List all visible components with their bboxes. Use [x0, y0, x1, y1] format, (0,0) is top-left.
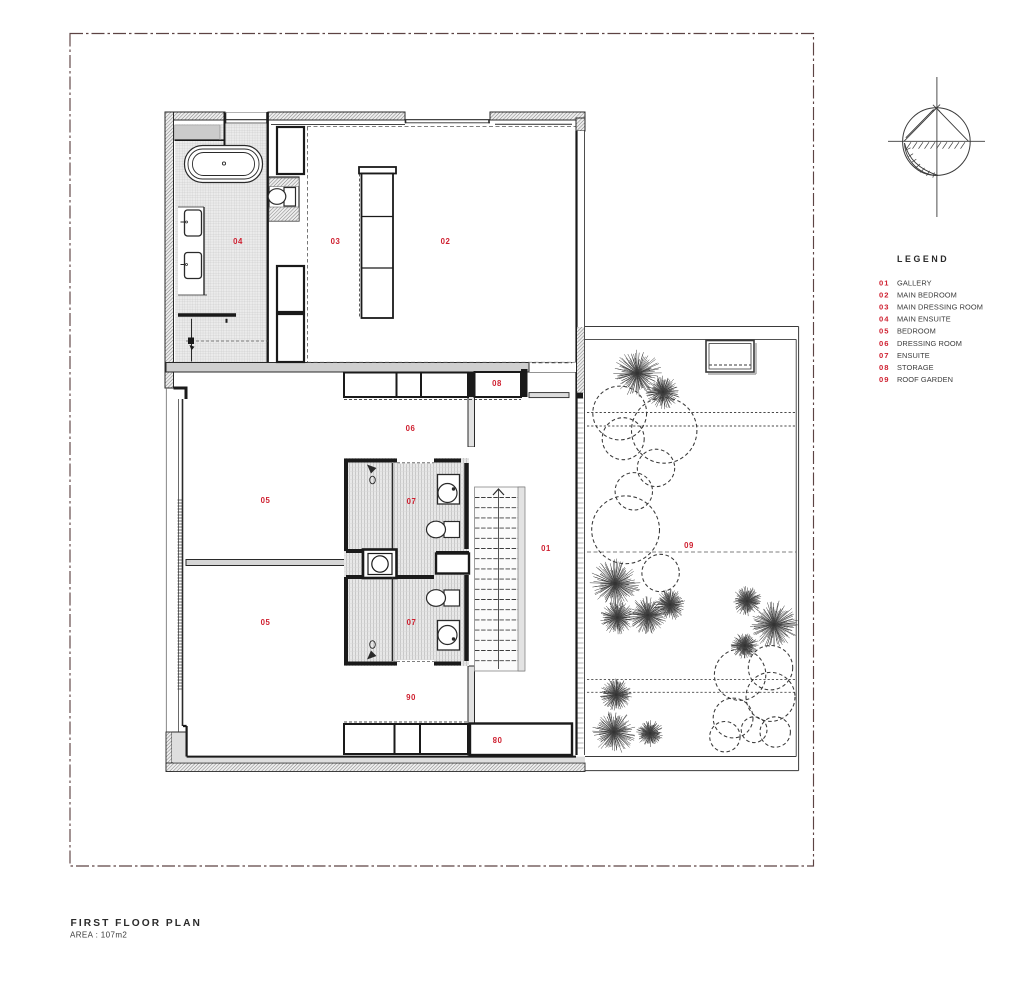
- svg-text:06: 06: [879, 339, 889, 348]
- svg-text:02: 02: [441, 237, 451, 246]
- svg-text:ENSUITE: ENSUITE: [897, 351, 930, 360]
- svg-text:06: 06: [406, 692, 416, 701]
- svg-text:08: 08: [492, 379, 502, 388]
- svg-text:LEGEND: LEGEND: [897, 254, 949, 264]
- svg-text:MAIN BEDROOM: MAIN BEDROOM: [897, 290, 957, 299]
- svg-text:05: 05: [261, 618, 271, 627]
- svg-text:04: 04: [879, 315, 889, 324]
- svg-text:STORAGE: STORAGE: [897, 363, 934, 372]
- svg-text:05: 05: [879, 327, 889, 336]
- svg-text:AREA : 107m2: AREA : 107m2: [70, 931, 127, 940]
- svg-text:04: 04: [233, 237, 243, 246]
- svg-text:FIRST FLOOR PLAN: FIRST FLOOR PLAN: [71, 918, 203, 929]
- svg-text:03: 03: [879, 303, 889, 312]
- svg-text:06: 06: [406, 424, 416, 433]
- svg-text:02: 02: [879, 290, 889, 299]
- svg-text:08: 08: [879, 363, 889, 372]
- svg-text:07: 07: [407, 618, 417, 627]
- svg-text:05: 05: [261, 496, 271, 505]
- svg-text:07: 07: [879, 351, 889, 360]
- svg-text:09: 09: [879, 375, 889, 384]
- svg-text:MAIN DRESSING ROOM: MAIN DRESSING ROOM: [897, 303, 983, 312]
- svg-text:ROOF GARDEN: ROOF GARDEN: [897, 375, 953, 384]
- svg-text:MAIN ENSUITE: MAIN ENSUITE: [897, 315, 951, 324]
- svg-text:BEDROOM: BEDROOM: [897, 327, 936, 336]
- svg-text:01: 01: [541, 544, 551, 553]
- svg-text:08: 08: [492, 735, 502, 744]
- svg-text:DRESSING ROOM: DRESSING ROOM: [897, 339, 962, 348]
- svg-text:01: 01: [879, 278, 889, 287]
- svg-text:07: 07: [407, 497, 417, 506]
- svg-text:09: 09: [684, 541, 694, 550]
- svg-text:GALLERY: GALLERY: [897, 278, 932, 287]
- svg-text:03: 03: [331, 237, 341, 246]
